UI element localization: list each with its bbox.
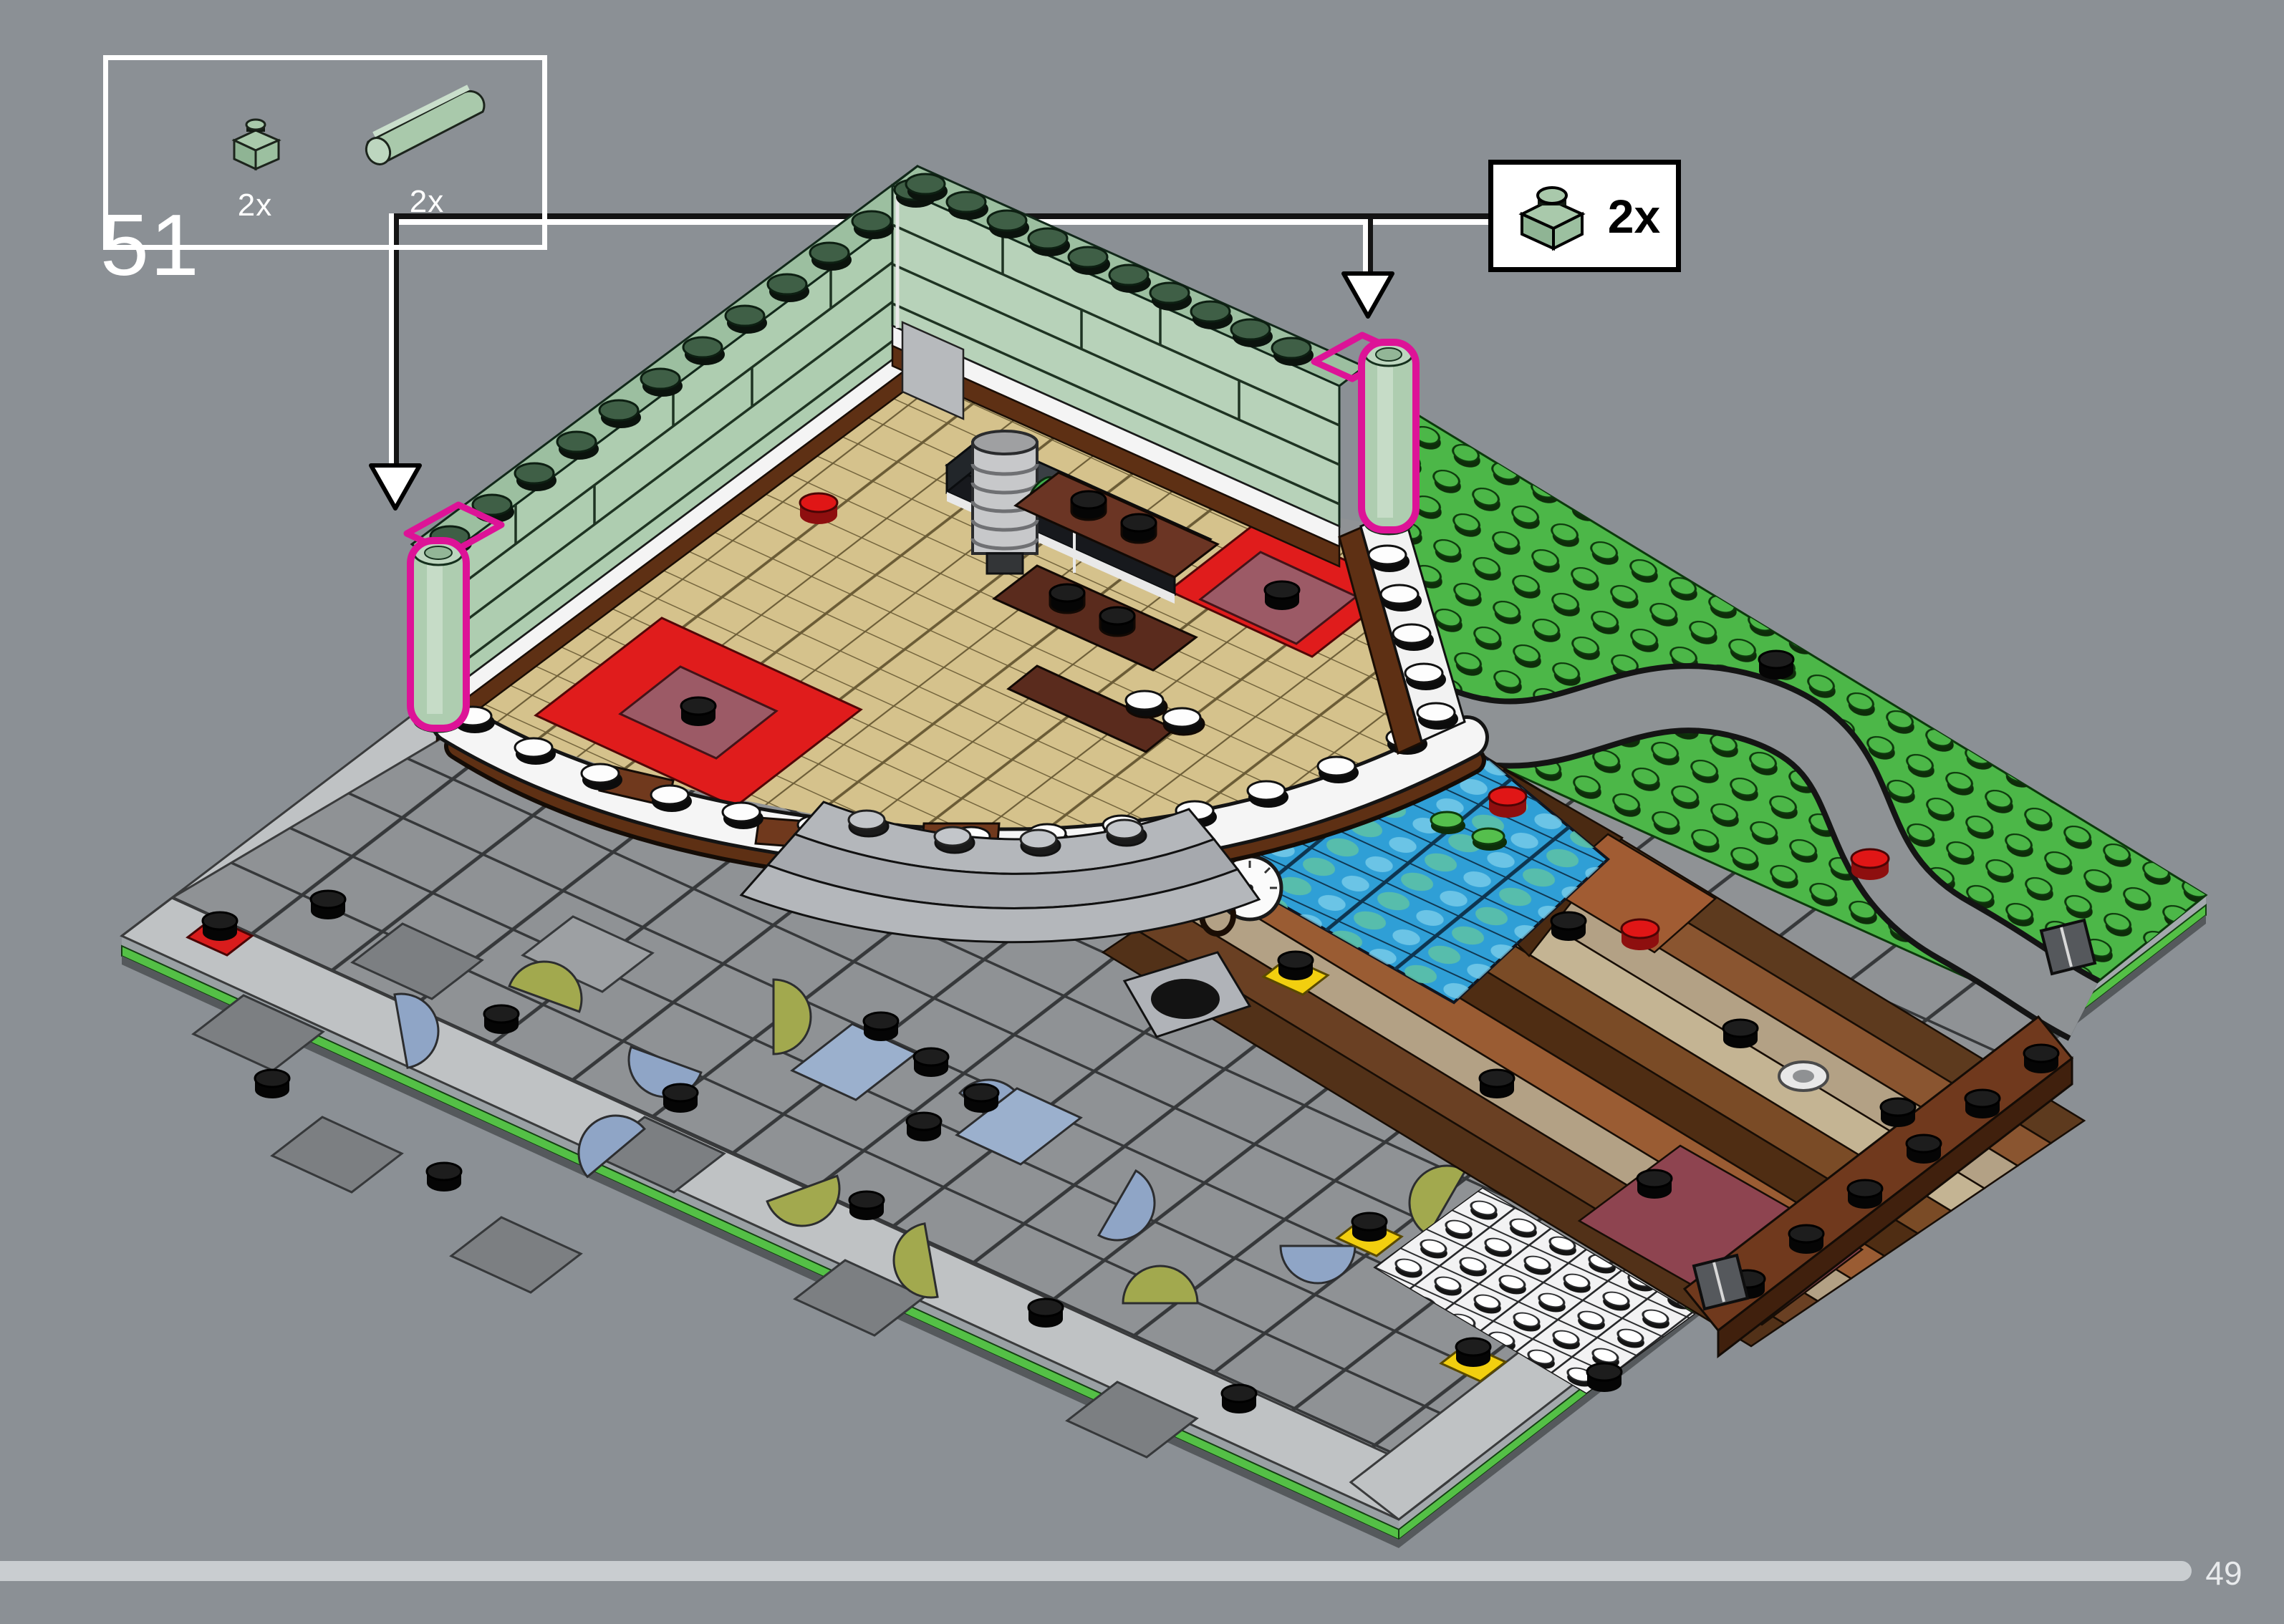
page-number: 49 bbox=[2177, 1554, 2270, 1592]
callout-box: 2x bbox=[1488, 160, 1681, 272]
plate-1x1-icon bbox=[208, 103, 302, 178]
arrow-down-right bbox=[1344, 274, 1392, 316]
parts-box-item-plate: 2x bbox=[194, 103, 316, 223]
step-number: 51 bbox=[100, 195, 201, 295]
arrow-down-left bbox=[371, 465, 420, 508]
callout-plate-icon bbox=[1509, 177, 1595, 256]
progress-bar bbox=[0, 1561, 2192, 1581]
parts-box-item-cylinder: 2x bbox=[344, 67, 509, 220]
part-qty-label: 2x bbox=[344, 184, 509, 220]
callout-qty-label: 2x bbox=[1608, 189, 1660, 243]
part-qty-label: 2x bbox=[194, 188, 316, 223]
silver-ring-tile bbox=[1779, 1062, 1828, 1091]
instruction-page: 2x 2x 51 2x 49 bbox=[0, 0, 2284, 1624]
cylinder-icon bbox=[348, 67, 506, 175]
